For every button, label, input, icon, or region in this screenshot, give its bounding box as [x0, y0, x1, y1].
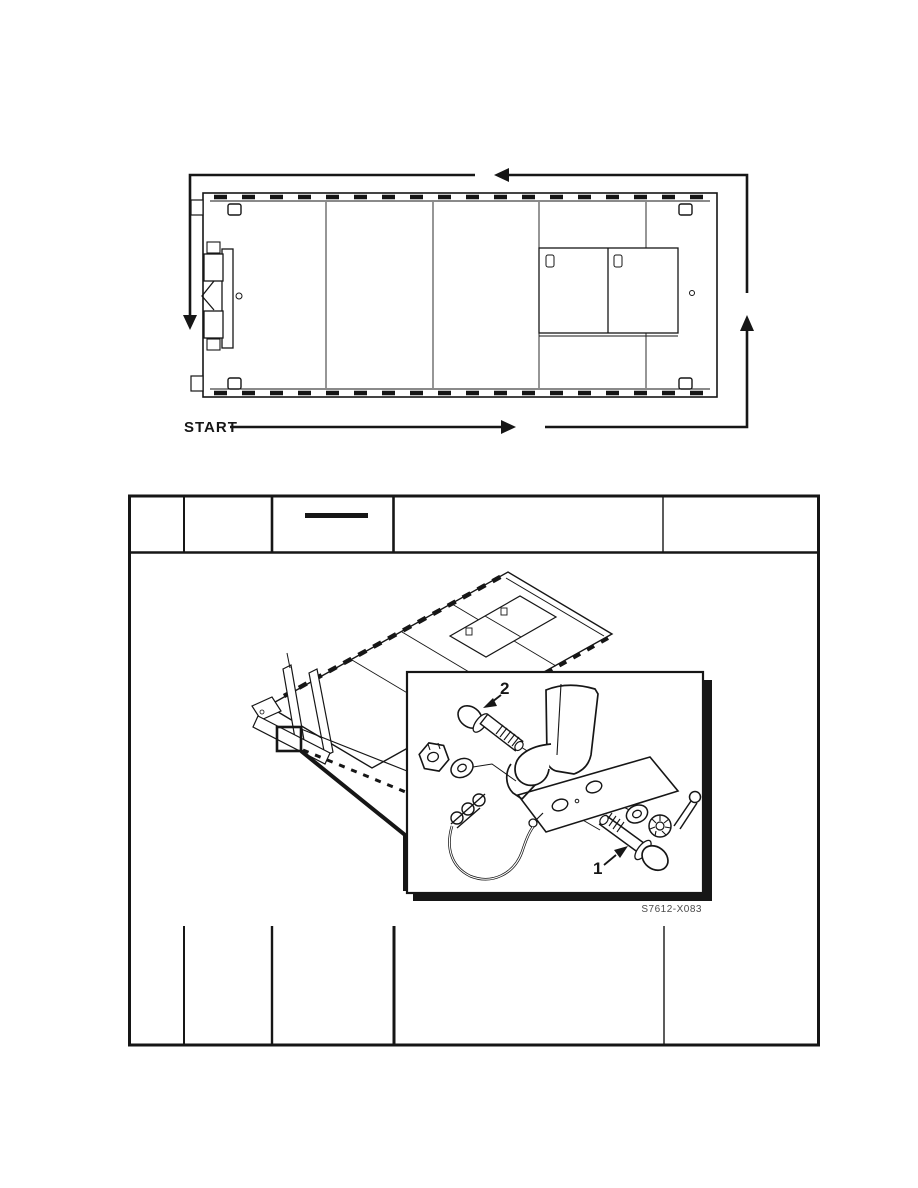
cargo-boxes-plan — [539, 248, 678, 336]
table-header-dividers — [184, 496, 663, 552]
figure: 2 1 S7612-X083 — [252, 572, 712, 915]
callout-2-label: 2 — [500, 679, 509, 698]
start-label: START — [184, 419, 238, 436]
table-body-dividers — [184, 926, 664, 1044]
figure-number: S7612-X083 — [641, 904, 702, 915]
castellated-nut-right — [649, 815, 671, 837]
walkaround-diagram: START — [183, 168, 754, 436]
callout-1-label: 1 — [593, 859, 602, 878]
header-blank-underline — [305, 513, 368, 518]
scanned-manual-page: START — [0, 0, 918, 1188]
page-artwork: START — [0, 0, 918, 1188]
trailer-plan-view — [191, 193, 717, 397]
